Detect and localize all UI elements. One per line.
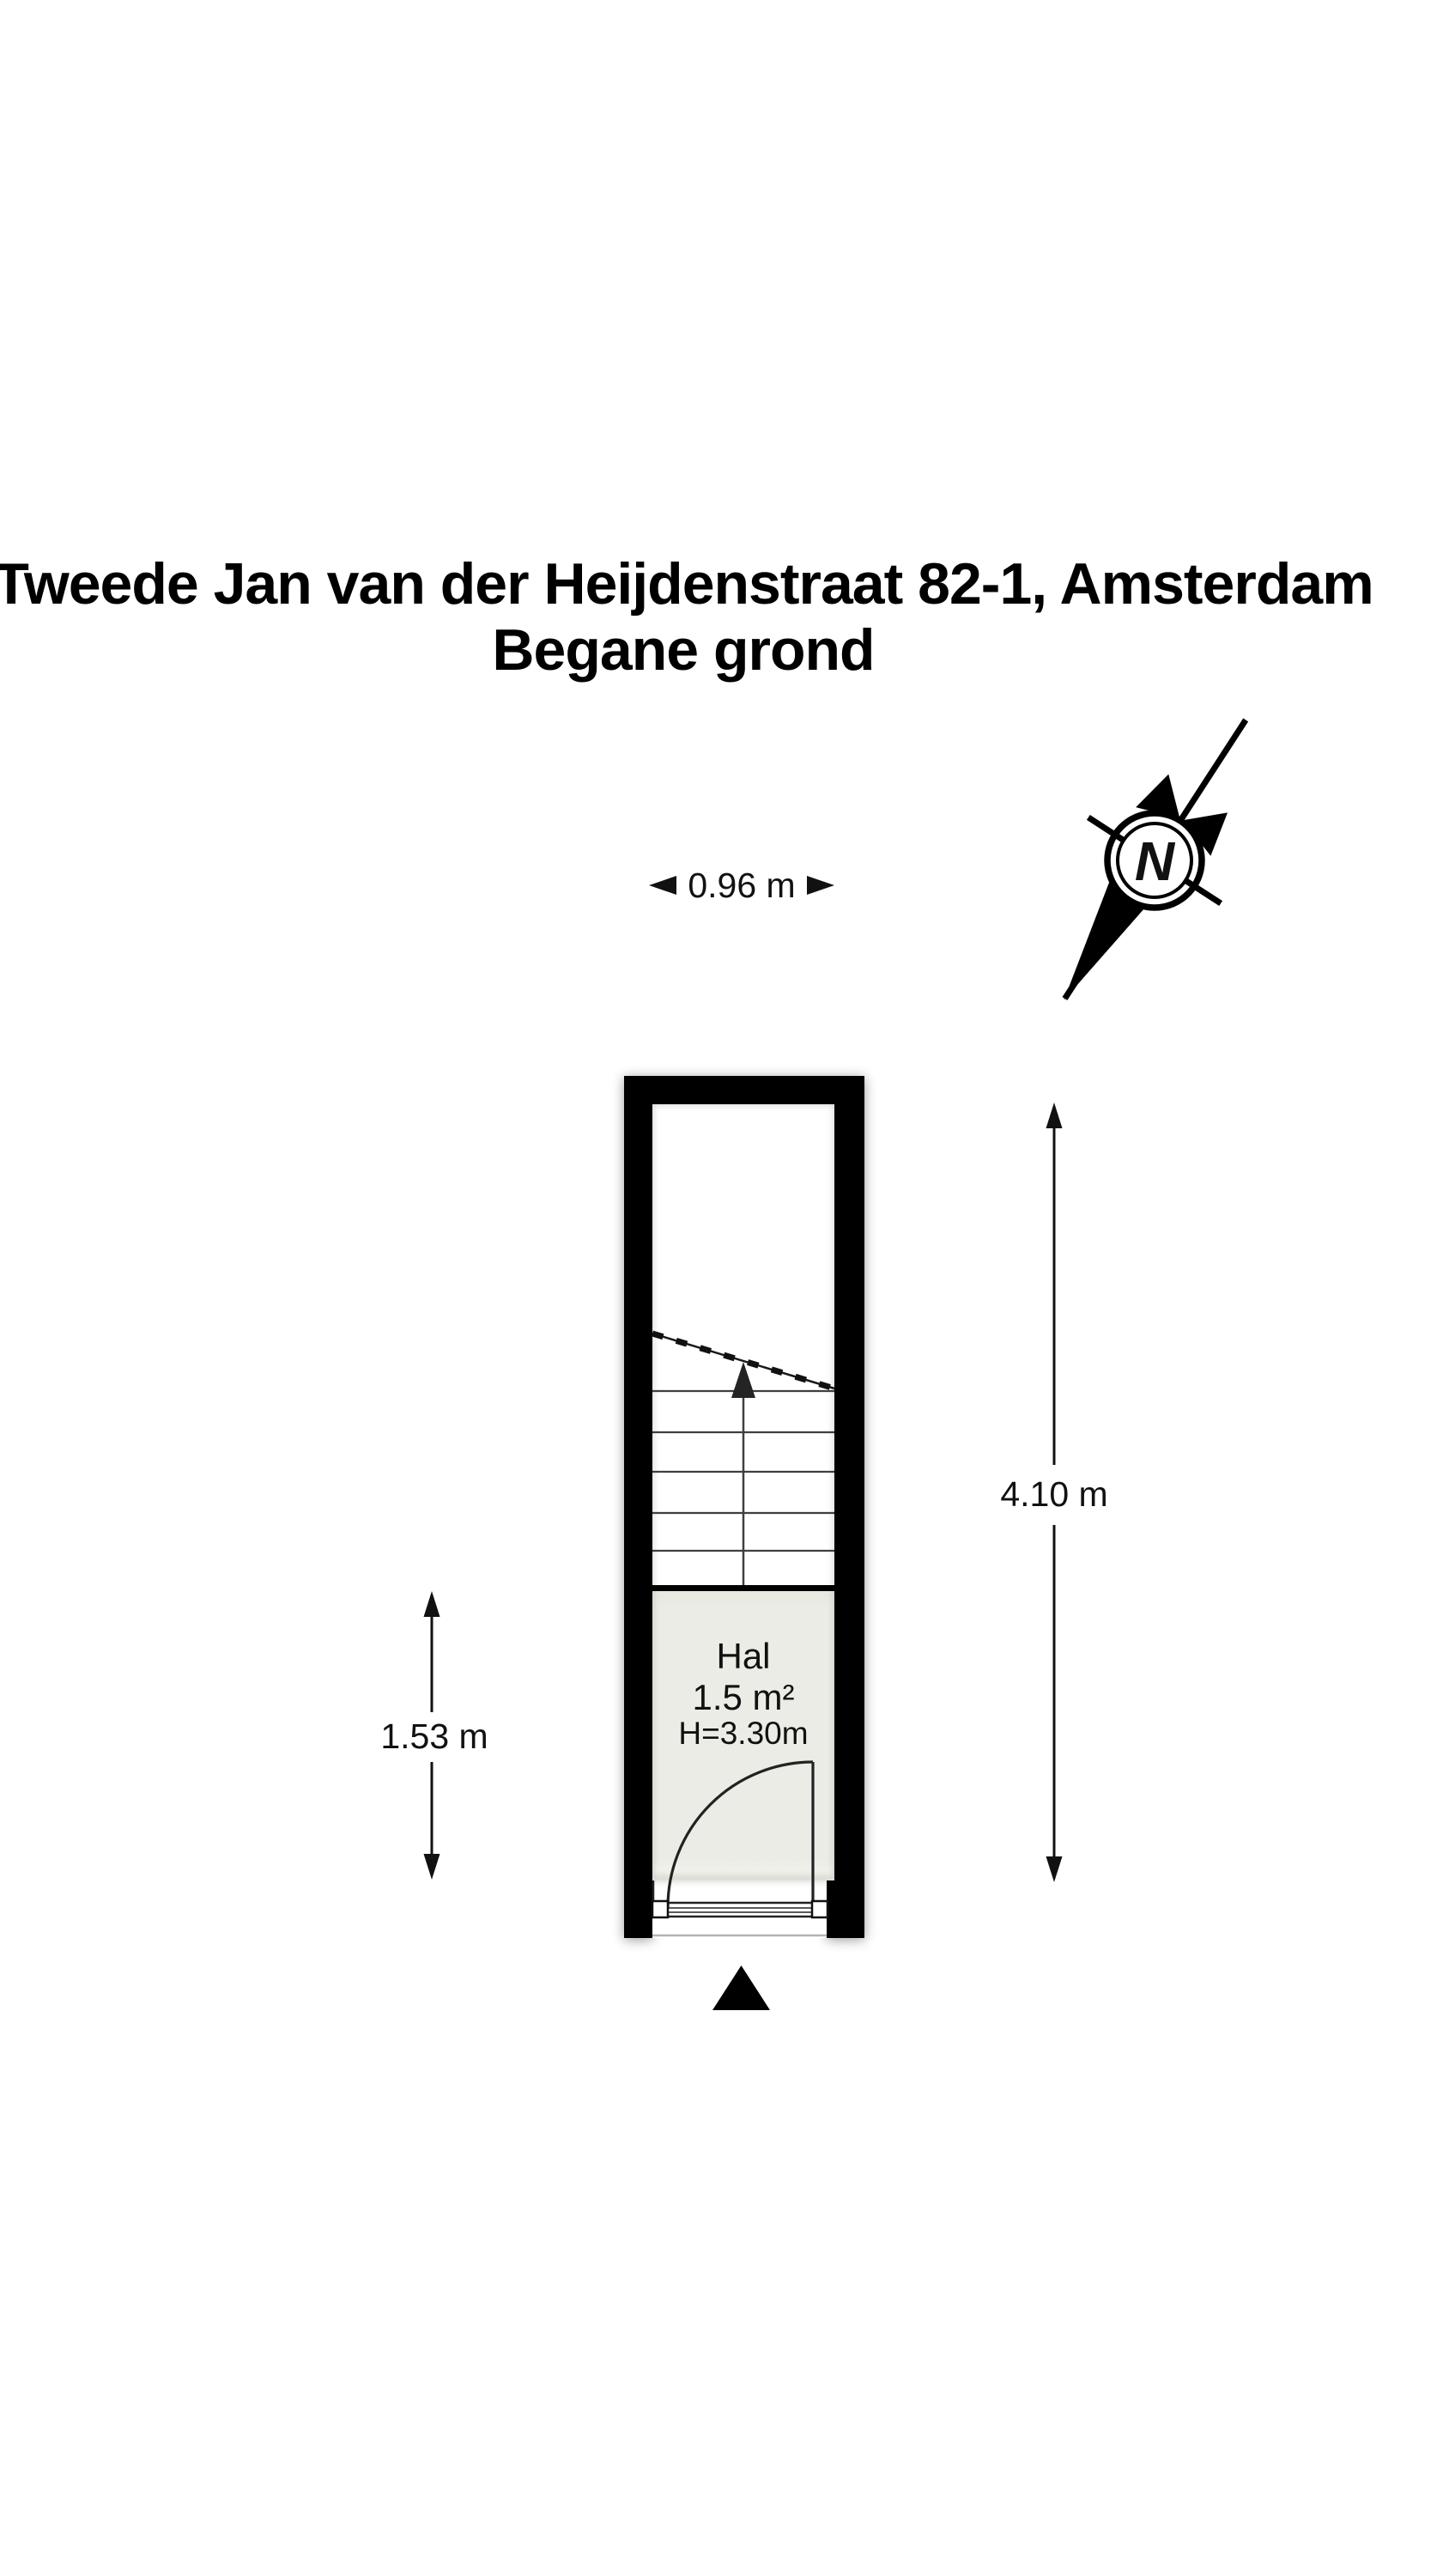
threshold-post-right [812, 1901, 828, 1917]
wall-right [834, 1076, 864, 1880]
room-name-label: Hal [716, 1636, 770, 1676]
dimension-width: 0.96 m [649, 866, 834, 905]
room-area-label: 1.5 m² [692, 1677, 794, 1717]
floor-plan-canvas: Hal 1.5 m² H=3.30m 0 [0, 0, 1449, 2576]
compass-north-label: N [1135, 830, 1176, 892]
dimension-hal-depth: 1.53 m [380, 1591, 488, 1880]
wall-left [624, 1076, 652, 1938]
entry-floor [652, 1880, 827, 1938]
dimension-hal-depth-label: 1.53 m [380, 1716, 488, 1756]
room-height-label: H=3.30m [678, 1716, 808, 1751]
dimension-arrow-down-icon [1046, 1856, 1063, 1882]
floorplan-page: Tweede Jan van der Heijdenstraat 82-1, A… [0, 0, 1449, 2576]
dimension-arrow-left-icon [649, 876, 676, 895]
entrance-arrow-icon [712, 1965, 770, 2010]
dimension-total-depth: 4.10 m [1000, 1103, 1107, 1882]
dimension-total-depth-label: 4.10 m [1000, 1474, 1107, 1514]
north-compass-icon: N [997, 677, 1312, 1042]
stair-hal-divider [652, 1585, 834, 1591]
dimension-arrow-up-icon [424, 1591, 440, 1617]
wall-right-stub [827, 1880, 864, 1938]
dimension-arrow-down-icon [424, 1854, 440, 1880]
dimension-width-label: 0.96 m [688, 866, 795, 905]
dimension-arrow-up-icon [1046, 1103, 1063, 1128]
wall-top [624, 1076, 864, 1104]
threshold-post-left [652, 1901, 668, 1917]
dimension-arrow-right-icon [807, 876, 834, 895]
